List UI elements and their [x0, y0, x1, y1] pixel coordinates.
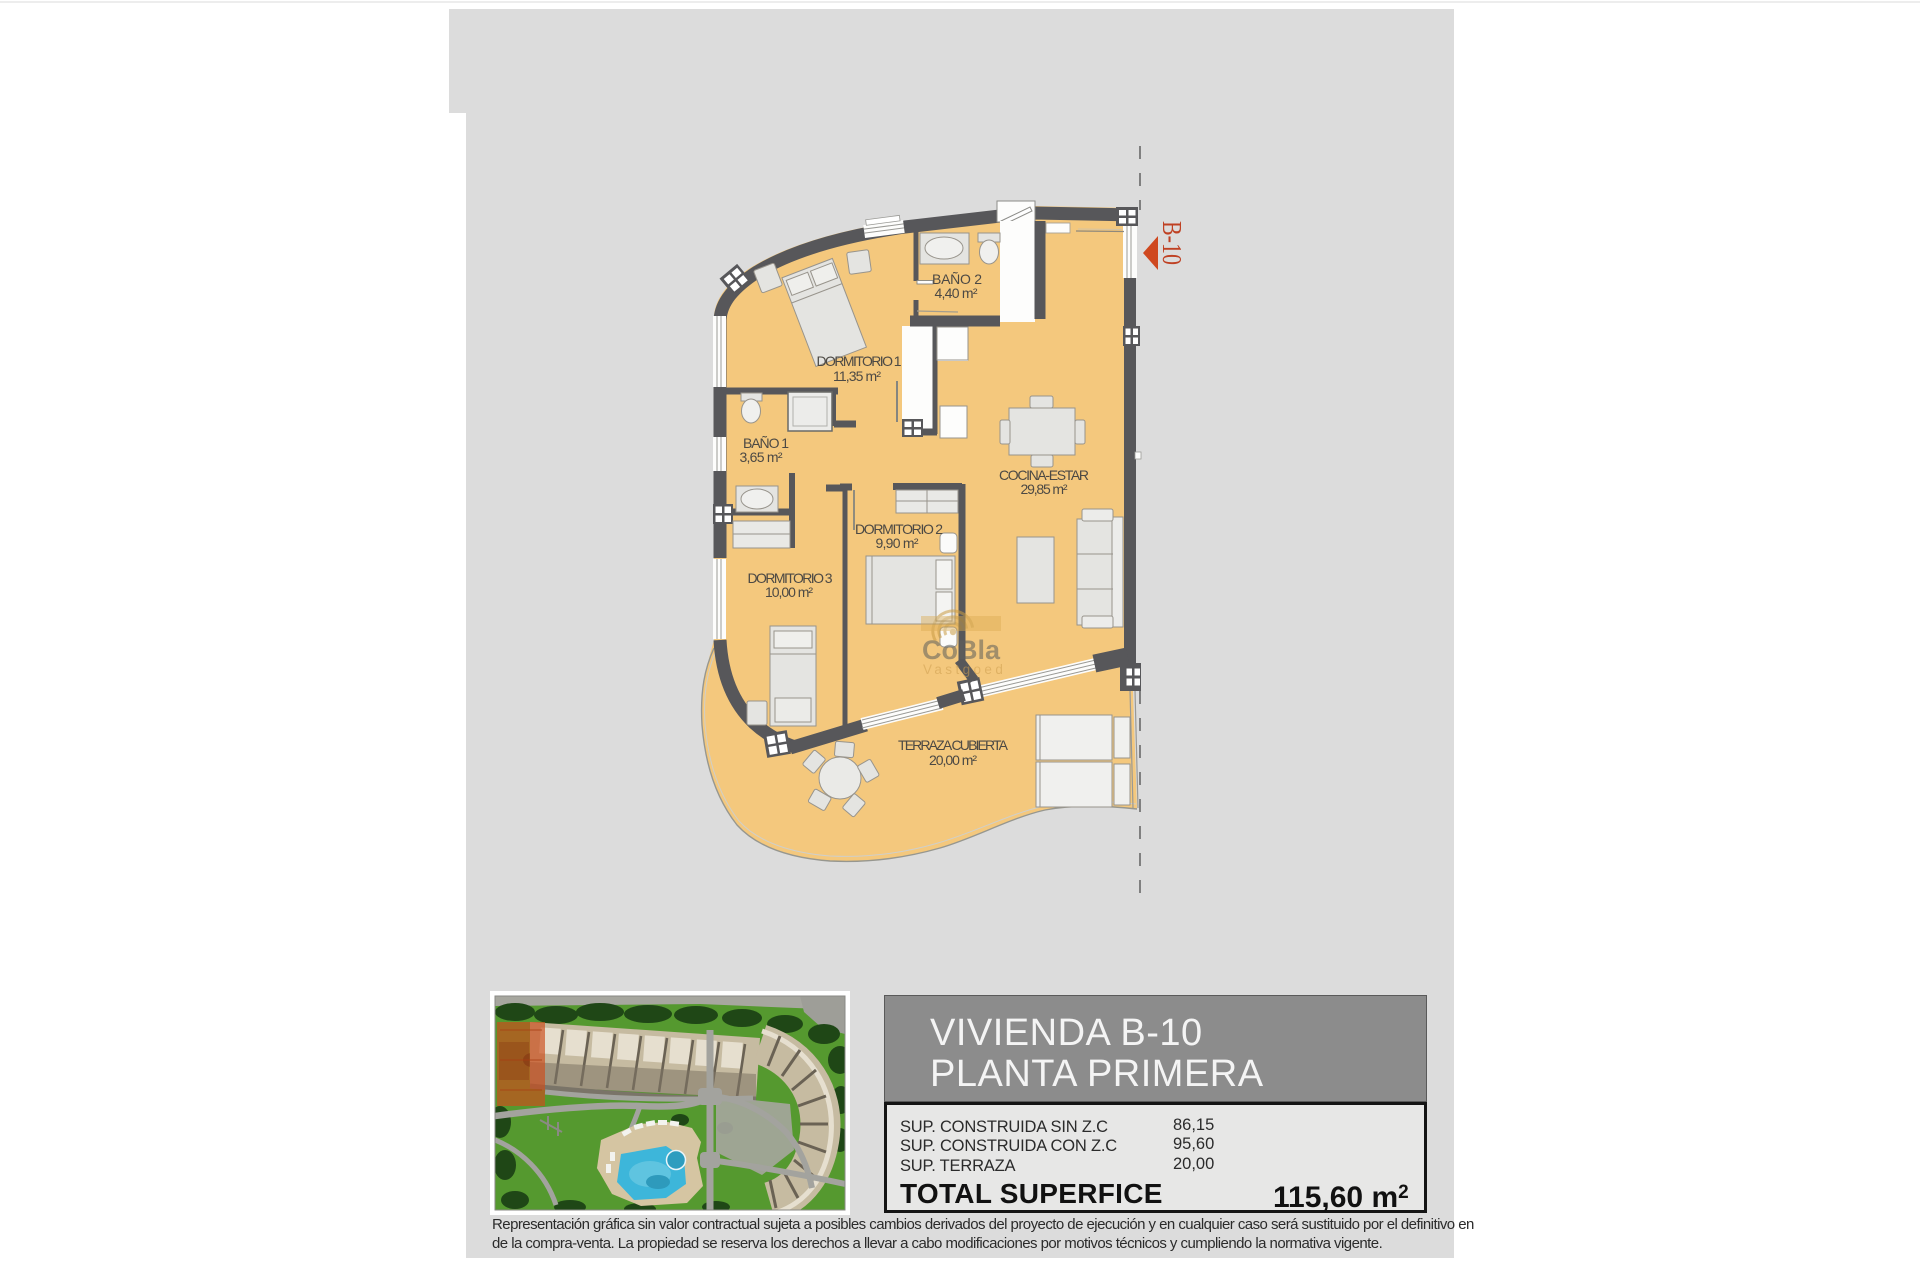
svg-text:TERRAZA CUBIERTA: TERRAZA CUBIERTA [898, 737, 1009, 753]
svg-text:20,00 m²: 20,00 m² [929, 752, 977, 768]
svg-text:CoBla: CoBla [922, 635, 1001, 665]
svg-text:9,90 m²: 9,90 m² [876, 535, 919, 551]
svg-text:29,85 m²: 29,85 m² [1021, 481, 1068, 497]
svg-text:3,65 m²: 3,65 m² [740, 449, 783, 465]
svg-text:B-10: B-10 [1157, 221, 1187, 265]
svg-text:11,35 m²: 11,35 m² [833, 368, 881, 384]
svg-text:10,00 m²: 10,00 m² [765, 584, 813, 600]
svg-text:4,40 m²: 4,40 m² [935, 285, 978, 301]
svg-text:Vastgoed: Vastgoed [923, 662, 1006, 677]
svg-text:DORMITORIO 1: DORMITORIO 1 [817, 353, 902, 369]
